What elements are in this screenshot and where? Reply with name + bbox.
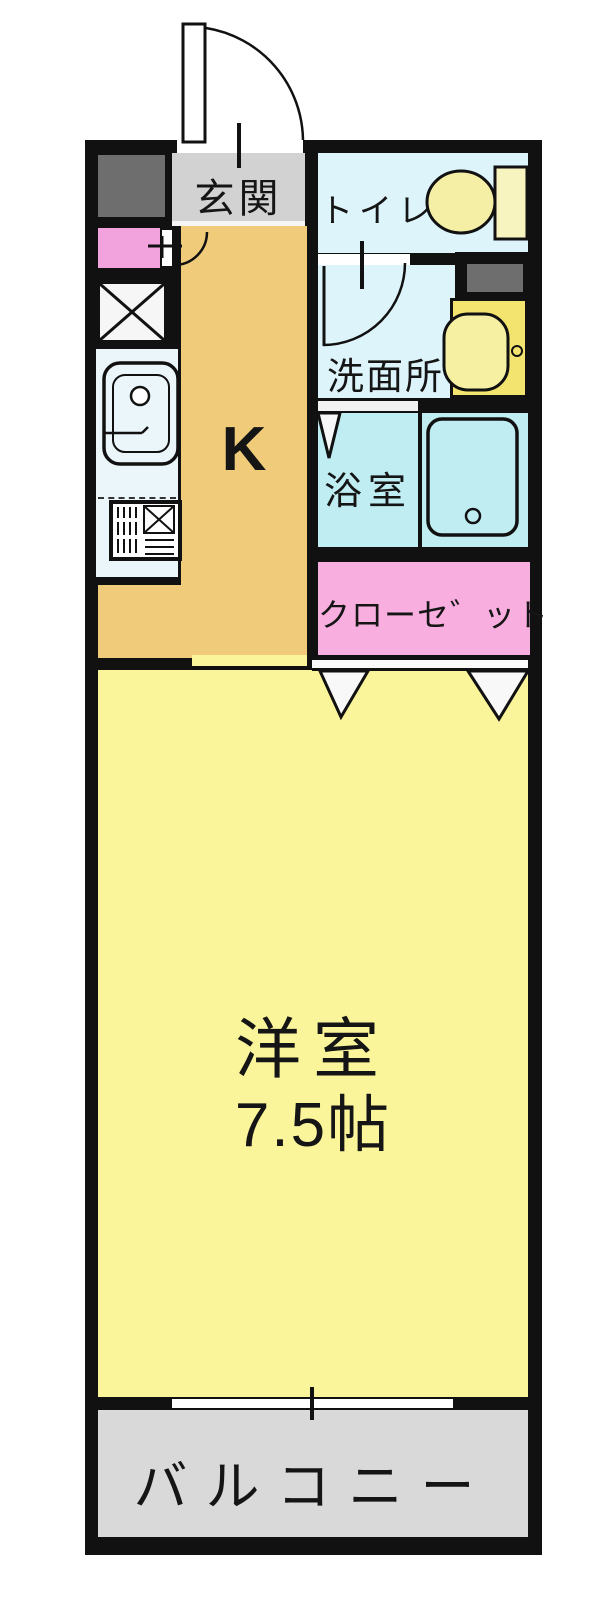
label-western-room-size: 7.5帖 [98,1074,528,1164]
closet-sill-line [312,668,528,671]
refrigerator-space-icon [97,281,167,343]
label-entrance: 玄関 [172,166,305,224]
floor-plan: 玄関 トイレ 洗面所 浴室 クローセ゛ット K 洋室 7.5帖 バルコニー [0,0,606,1604]
kitchen-counter [96,349,178,577]
entrance-door-icon [183,24,303,142]
toilet-door-tick [360,241,364,289]
kitchen-living-line [192,666,307,669]
counter-divider [98,497,176,499]
label-toilet: トイレ [320,184,425,232]
label-kitchen: K [181,414,307,485]
storage-door-leaf [160,228,174,268]
label-washroom: 洗面所 [318,346,453,400]
storage-pink-box [98,228,160,268]
bath-door-opening [318,401,418,411]
label-balcony: バルコニー [98,1442,528,1521]
room-kitchen-lower [98,585,184,658]
entrance-door-tick [237,123,241,168]
storage-box [98,155,165,217]
label-closet: クローセ゛ット [318,590,530,636]
bath-partition [418,413,422,547]
toilet-door-opening [318,254,410,265]
vanity-unit [450,298,528,398]
closet-sill [312,660,528,668]
vanity-cabinet [467,264,523,292]
label-bathroom: 浴室 [318,460,418,515]
balcony-window-tick [310,1387,314,1420]
